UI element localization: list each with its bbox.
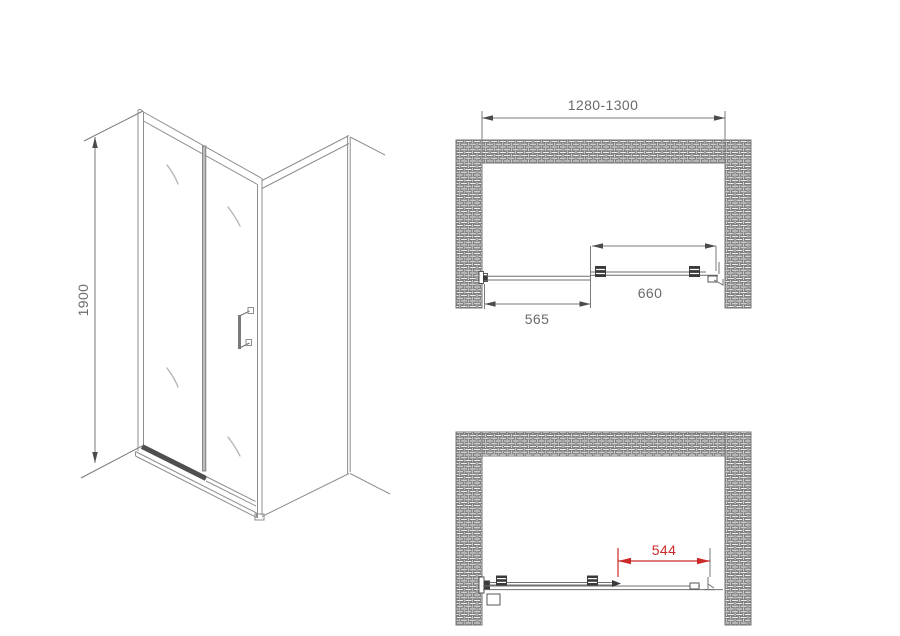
sliding-panel-width-label: 660 [638,285,663,301]
door-handle [240,308,254,350]
height-dimension: 1900 [75,111,143,478]
height-dimension-label: 1900 [75,284,91,317]
plan-view-open: 544 [456,432,751,625]
roller-bracket [689,266,700,277]
roller-bracket [587,576,598,586]
walk-in-clearance-label: 544 [652,542,677,558]
door-plan-open [479,576,723,606]
door-plan-closed [479,262,723,285]
brick-wall-right [725,432,751,625]
brick-wall-left [456,140,482,308]
plan-view-closed: 1280-1300 [456,97,751,327]
shower-door-technical-drawing: 1900 [0,0,900,636]
technical-drawing-page: 1900 [0,0,900,636]
brick-lintel [456,432,751,456]
sliding-panel-stile [203,146,206,471]
wall-context-line-top [350,137,385,155]
door-frame [136,110,265,520]
brick-wall-right [725,140,751,308]
brick-walls-closed [456,140,751,308]
wall-fixing-bracket [690,577,715,590]
floor-context-line [350,474,390,495]
roller-bracket [595,266,606,277]
fixed-panel-width-label: 565 [525,311,550,327]
isometric-view: 1900 [75,110,390,520]
roller-bracket [496,576,507,586]
bottom-rail-dark [142,447,206,479]
fixed-panel-dimension: 565 [485,284,591,327]
brick-lintel [456,140,751,163]
walk-in-clearance-dimension: 544 [618,542,710,577]
side-return-panel [262,136,390,517]
opening-width-label: 1280-1300 [568,97,639,113]
brick-wall-left [456,432,482,625]
